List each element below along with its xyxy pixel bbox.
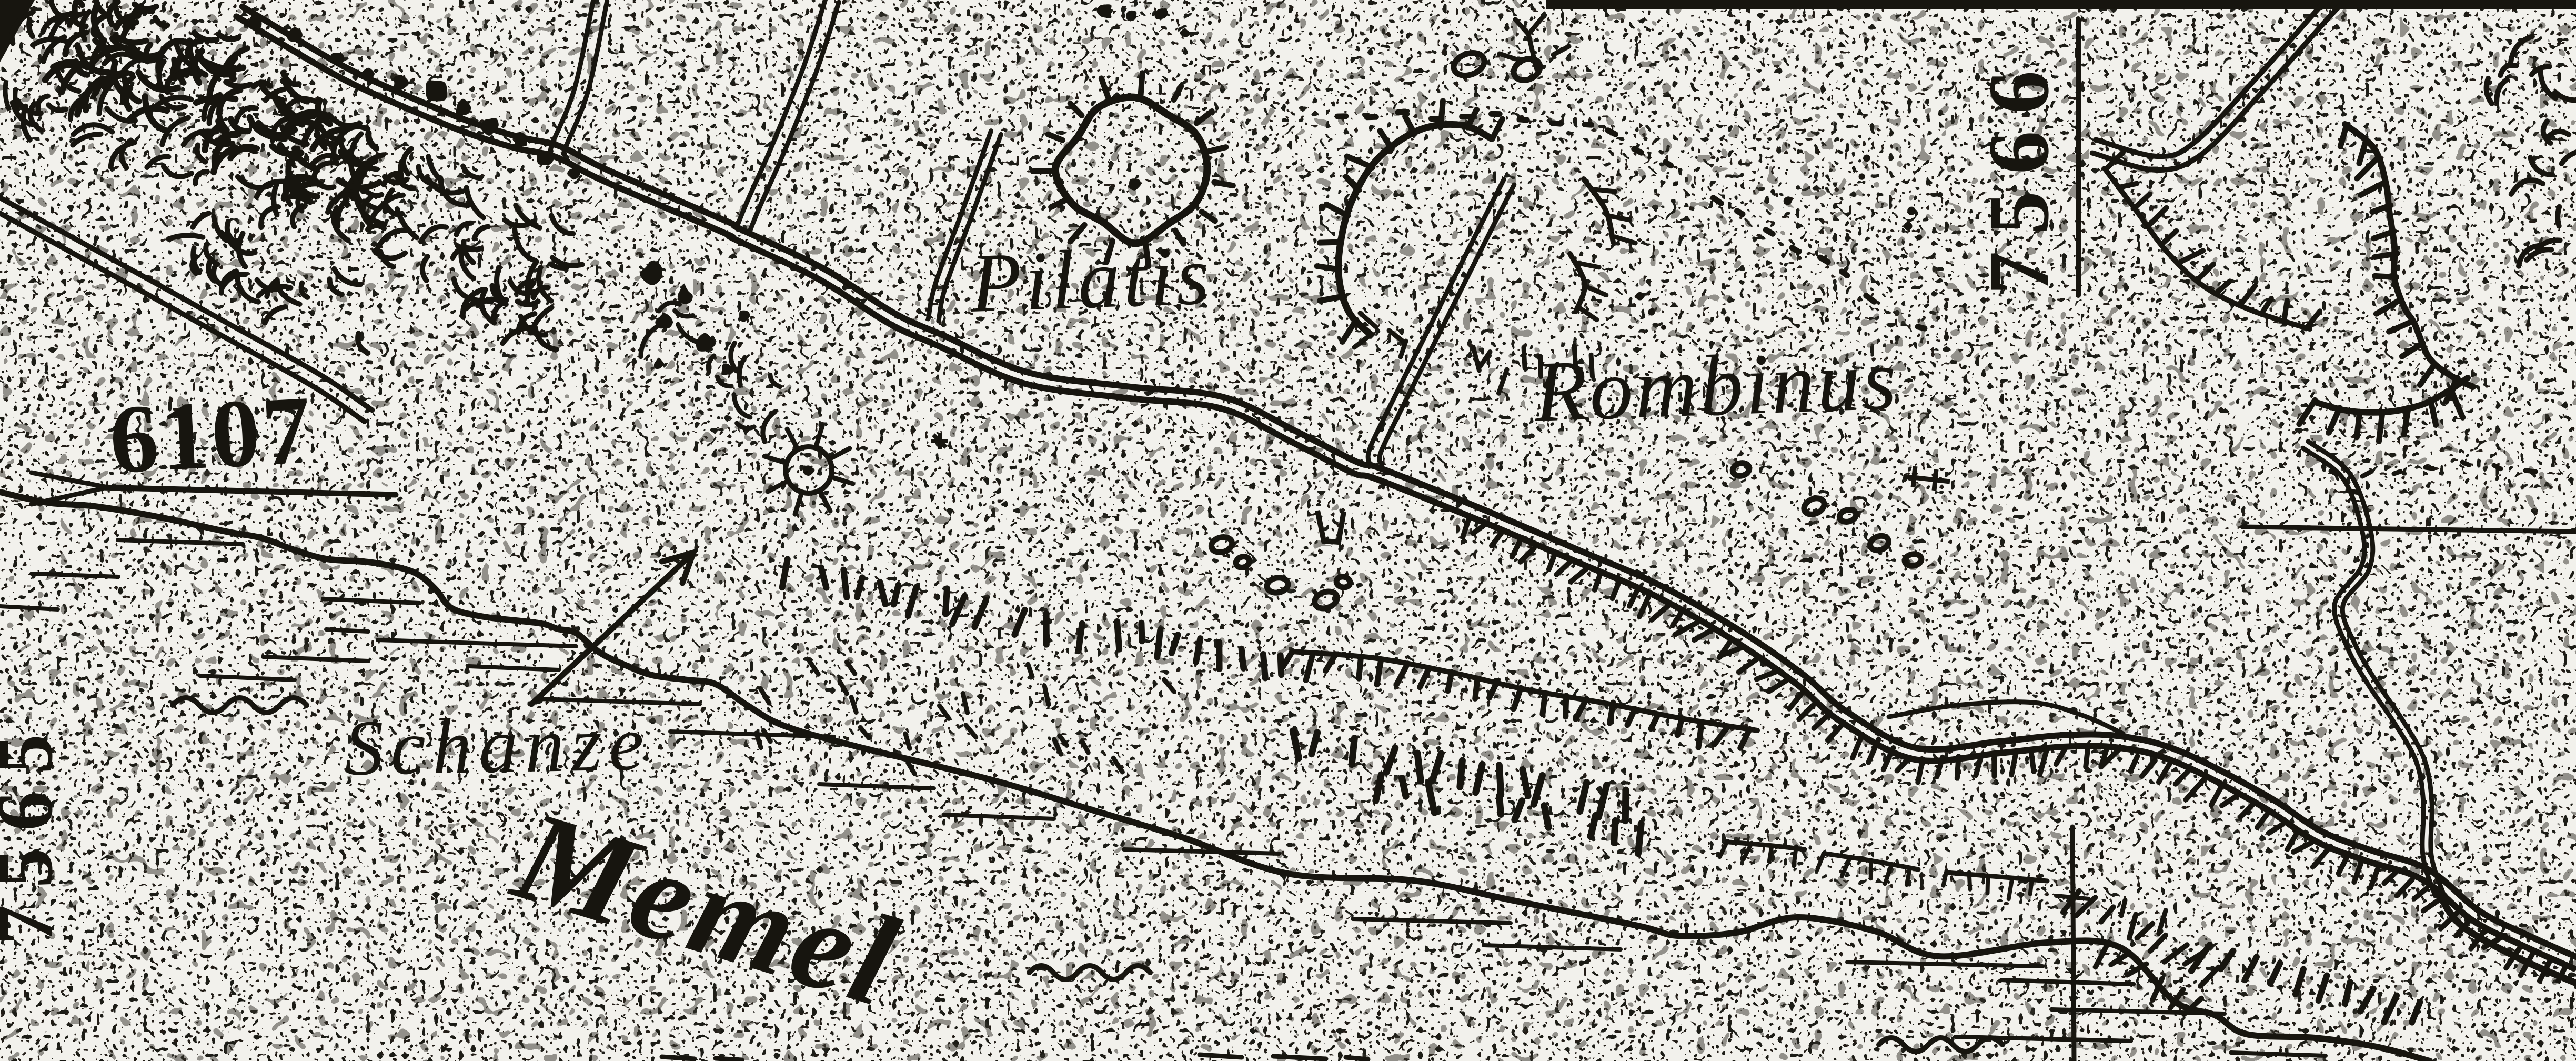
svg-text:Pilatis: Pilatis (968, 228, 1214, 330)
svg-text:Rombinus: Rombinus (1532, 331, 1900, 440)
svg-text:7566: 7566 (1970, 54, 2067, 295)
svg-text:Schanze: Schanze (344, 699, 651, 792)
svg-text:6107: 6107 (107, 376, 315, 494)
svg-text:7565: 7565 (0, 717, 69, 945)
